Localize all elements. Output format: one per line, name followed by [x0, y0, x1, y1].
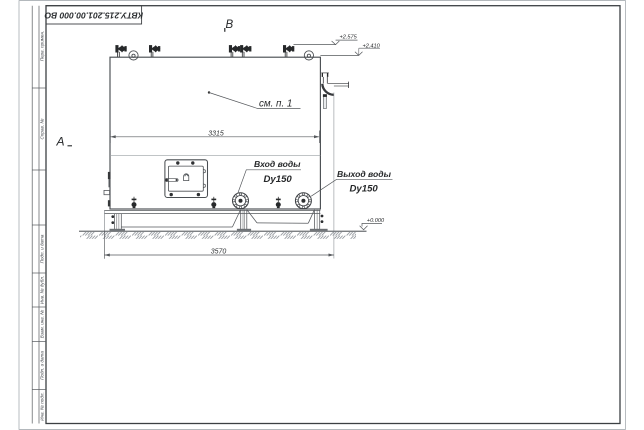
- svg-text:Вход воды: Вход воды: [254, 159, 301, 169]
- svg-text:Dy150: Dy150: [264, 174, 293, 185]
- svg-text:+2.410: +2.410: [363, 43, 381, 49]
- svg-text:Справ. №: Справ. №: [40, 119, 45, 140]
- svg-text:А: А: [56, 134, 65, 148]
- svg-text:+2.575: +2.575: [340, 34, 358, 40]
- svg-text:Перв. примен.: Перв. примен.: [40, 31, 45, 62]
- svg-text:3315: 3315: [208, 130, 224, 137]
- svg-text:см. п. 1: см. п. 1: [259, 98, 292, 109]
- svg-text:Инв. № подл.: Инв. № подл.: [40, 392, 45, 421]
- svg-text:Инв. № дубл.: Инв. № дубл.: [40, 276, 45, 304]
- svg-text:Взам. инв. №: Взам. инв. №: [40, 310, 45, 338]
- svg-text:Подп. и дата: Подп. и дата: [40, 234, 45, 263]
- svg-text:3570: 3570: [211, 248, 227, 255]
- svg-text:В: В: [226, 19, 234, 31]
- svg-text:Выход воды: Выход воды: [337, 169, 392, 179]
- svg-text:+0.000: +0.000: [367, 218, 385, 224]
- svg-text:КВТУ.215.201.00.000 ВО: КВТУ.215.201.00.000 ВО: [44, 11, 143, 21]
- svg-text:Подп. и дата: Подп. и дата: [40, 351, 45, 380]
- svg-text:Dy150: Dy150: [350, 184, 379, 195]
